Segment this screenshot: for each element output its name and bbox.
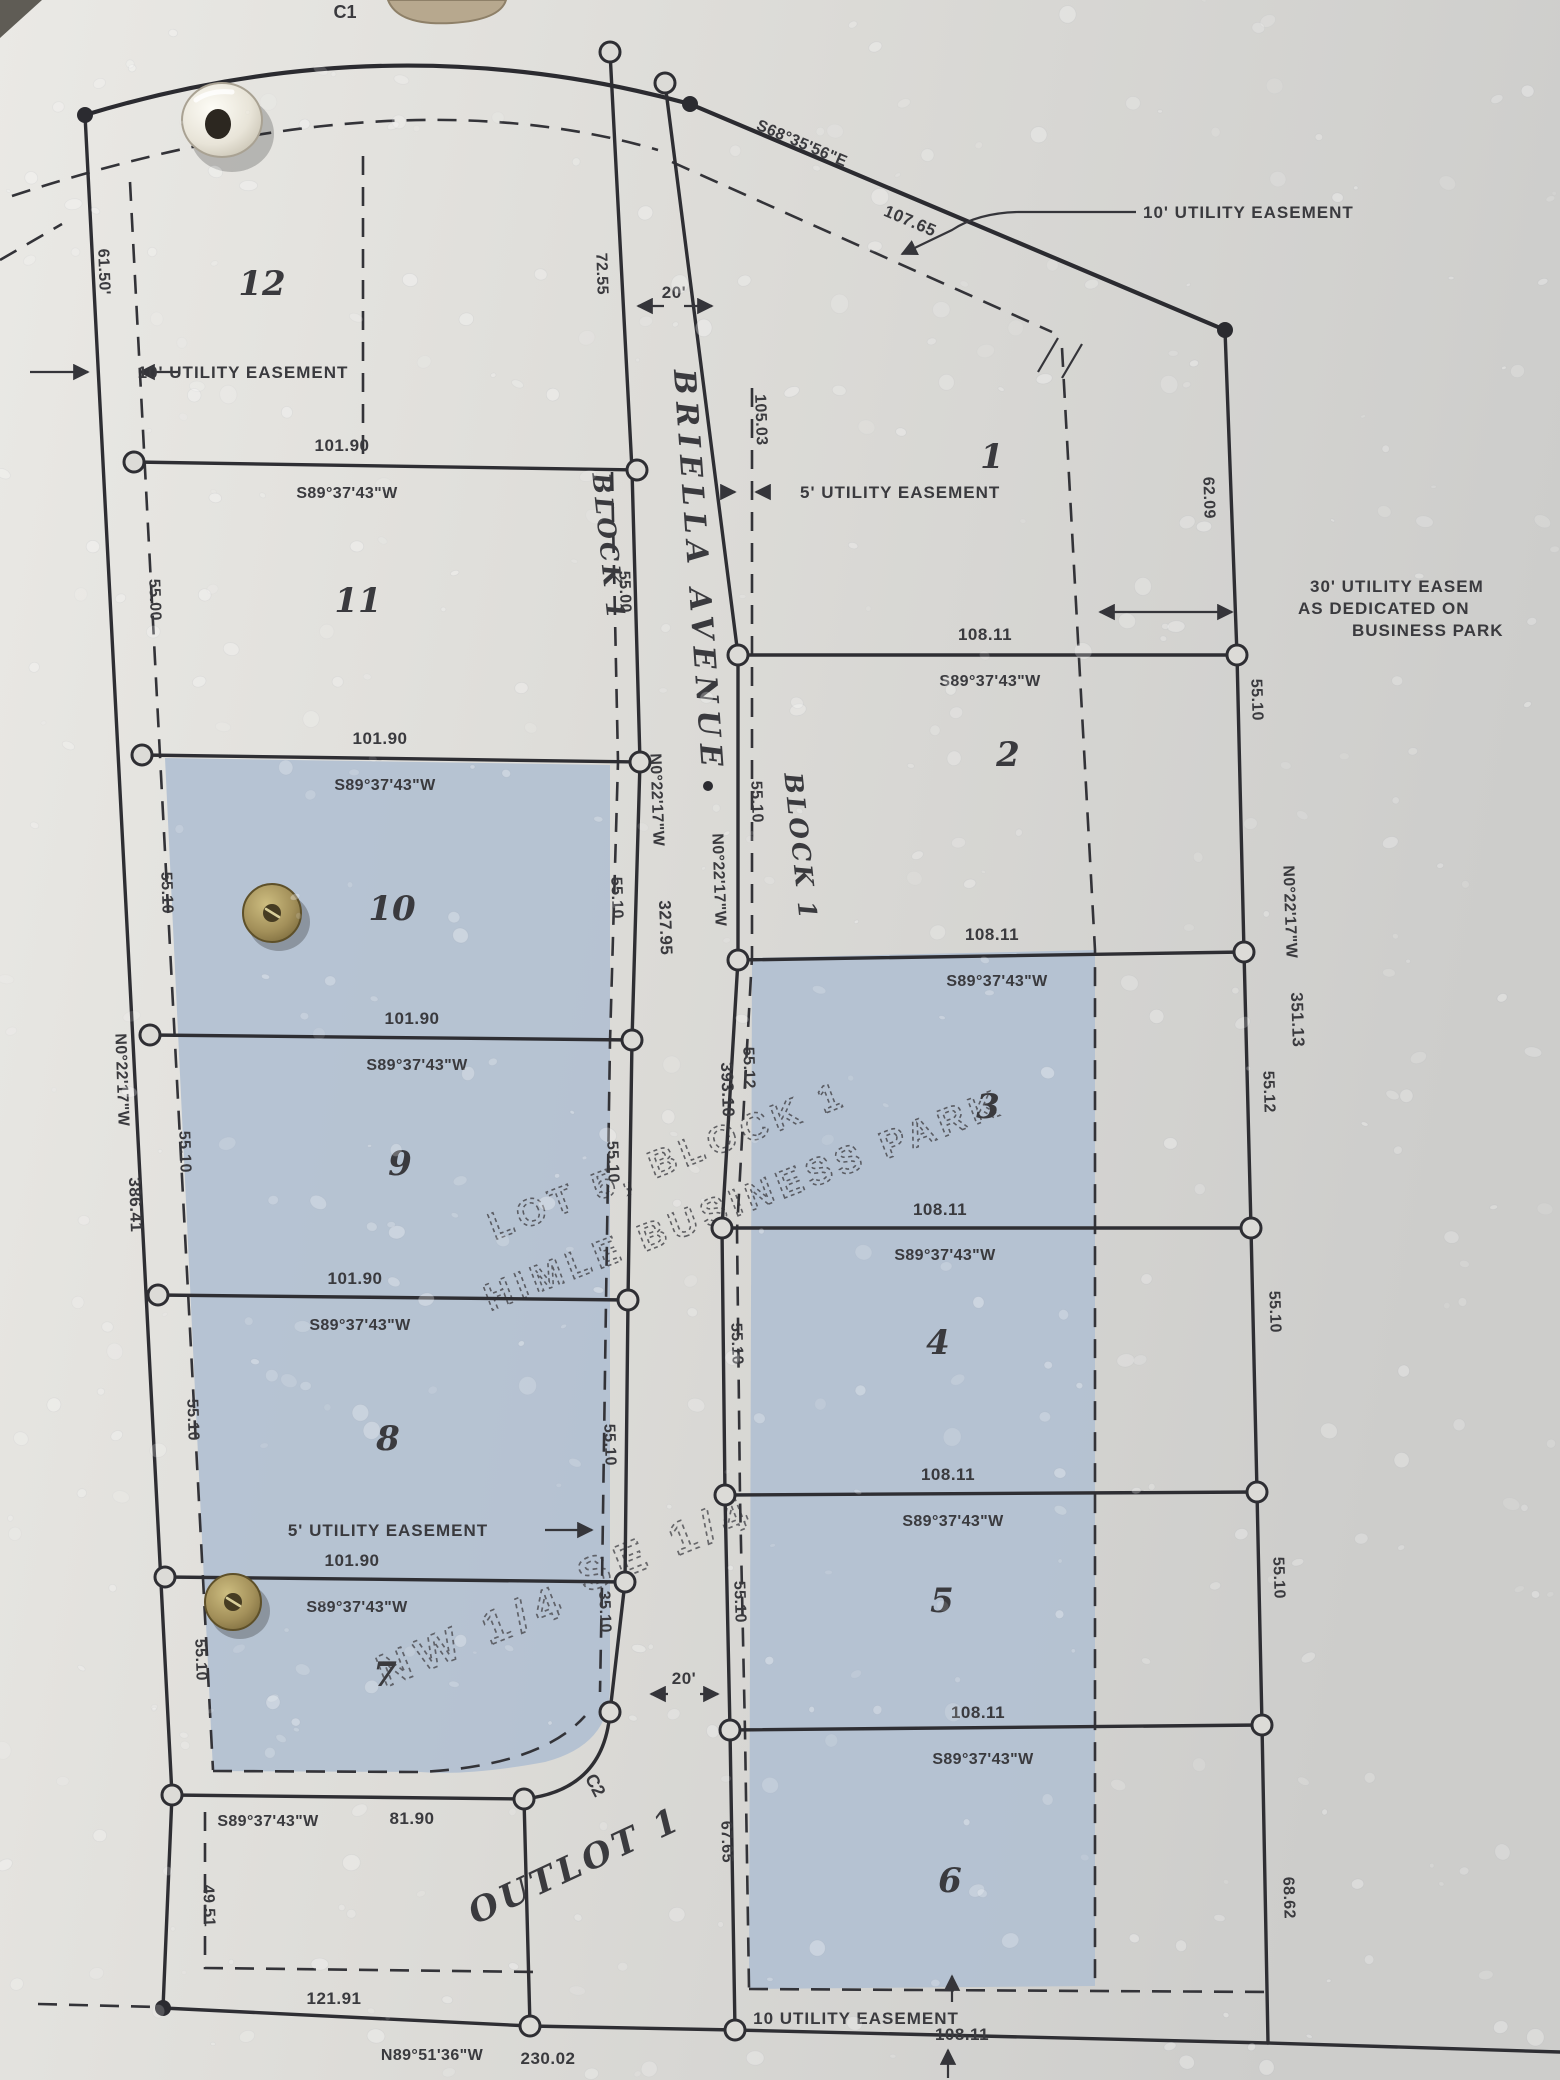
west-row-seg-55-10b: 55.10 bbox=[603, 1141, 621, 1184]
east-boundary-total: 351.13 bbox=[1287, 992, 1308, 1048]
west-edge-seg-55-10b: 55.10 bbox=[175, 1131, 193, 1174]
outlot-top-bearing: S89°37'43"W bbox=[217, 1813, 319, 1830]
east-line3-bearing: S89°37'43"W bbox=[894, 1247, 996, 1264]
west-line1-length: 101.90 bbox=[315, 436, 370, 455]
east-line3-length: 108.11 bbox=[913, 1200, 967, 1219]
lot-12: 12 bbox=[238, 264, 285, 304]
west-line4-bearing: S89°37'43"W bbox=[309, 1317, 411, 1334]
west-boundary-total: 386.41 bbox=[125, 1177, 146, 1233]
five-ft-easement-lower: 5' UTILITY EASEMENT bbox=[288, 1521, 488, 1540]
utility-easement-top-right: 10' UTILITY EASEMENT bbox=[1143, 203, 1354, 222]
east-row-seg-55-10a: 55.10 bbox=[747, 781, 765, 824]
east-edge-seg-55-10b: 55.10 bbox=[1265, 1291, 1283, 1334]
lot-1: 1 bbox=[980, 437, 1004, 477]
west-edge-seg-55-10d: 55.10 bbox=[191, 1639, 209, 1682]
east-row-seg-67-65: 67.65 bbox=[717, 1821, 735, 1864]
west-boundary-bearing: N0°22'17"W bbox=[111, 1033, 131, 1127]
east-line2-bearing: S89°37'43"W bbox=[946, 973, 1048, 990]
lot-4: 4 bbox=[926, 1323, 950, 1363]
utility-easement-top-left: 10' UTILITY EASEMENT bbox=[138, 363, 349, 382]
west-edge-seg-61-50: 61.50' bbox=[94, 248, 113, 295]
west-row-total: 327.95 bbox=[655, 900, 676, 956]
west-edge-seg-55-10c: 55.10 bbox=[183, 1399, 201, 1442]
lot-3: 3 bbox=[976, 1087, 1000, 1127]
outlot-top-length: 81.90 bbox=[389, 1809, 434, 1828]
lot-2: 2 bbox=[995, 735, 1020, 775]
east-line1-length: 108.11 bbox=[958, 625, 1012, 644]
west-row-seg-35-10: 35.10 bbox=[595, 1591, 613, 1634]
east-line4-length: 108.11 bbox=[921, 1465, 975, 1484]
east-edge-seg-62-09: 62.09 bbox=[1199, 477, 1217, 520]
east-row-bearing: N0°22'17"W bbox=[708, 833, 728, 927]
west-line2-length: 101.90 bbox=[353, 729, 408, 748]
road-width-bottom: 20' bbox=[672, 1669, 696, 1688]
west-line2-bearing: S89°37'43"W bbox=[334, 777, 436, 794]
thirty-easement-line3: BUSINESS PARK bbox=[1352, 621, 1504, 640]
west-edge-seg-49-51: 49.51 bbox=[199, 1885, 217, 1928]
east-line2-length: 108.11 bbox=[965, 925, 1019, 944]
west-row-seg-55-00: 55.00 bbox=[615, 571, 633, 614]
east-row-seg-55-10c: 55.10 bbox=[730, 1581, 748, 1624]
curve-c1-label: C1 bbox=[333, 2, 356, 22]
west-line5-length: 101.90 bbox=[325, 1551, 380, 1570]
east-boundary-bearing: N0°22'17"W bbox=[1279, 865, 1299, 959]
west-line4-length: 101.90 bbox=[328, 1269, 383, 1288]
west-line3-bearing: S89°37'43"W bbox=[366, 1057, 468, 1074]
bottom-total: 230.02 bbox=[521, 2049, 576, 2068]
east-edge-seg-68-62: 68.62 bbox=[1279, 1877, 1297, 1920]
lot-11: 11 bbox=[334, 581, 381, 621]
east-line5-bearing: S89°37'43"W bbox=[932, 1751, 1034, 1768]
bottom-left-length: 121.91 bbox=[307, 1989, 362, 2008]
bottom-right-length: 108.11 bbox=[935, 2025, 989, 2044]
west-row-seg-55-10c: 55.10 bbox=[600, 1424, 618, 1467]
thirty-easement-line2: AS DEDICATED ON bbox=[1298, 599, 1469, 618]
east-row-seg-55-12: 55.12 bbox=[739, 1047, 757, 1090]
five-ft-easement-upper: 5' UTILITY EASEMENT bbox=[800, 483, 1000, 502]
west-edge-seg-55-10a: 55.10 bbox=[157, 872, 175, 915]
east-row-seg-105-03: 105.03 bbox=[751, 394, 770, 446]
plat-map-photo: LOT 5, BLOCK 1 HIMLE BUSINESS PARK NW 1/… bbox=[0, 0, 1560, 2080]
west-line3-length: 101.90 bbox=[385, 1009, 440, 1028]
lot-6: 6 bbox=[938, 1861, 962, 1901]
west-edge-seg-55-00: 55.00 bbox=[145, 579, 163, 622]
east-edge-seg-55-12: 55.12 bbox=[1259, 1071, 1277, 1114]
lot-10: 10 bbox=[368, 889, 416, 929]
east-edge-seg-55-10a: 55.10 bbox=[1247, 679, 1265, 722]
bottom-bearing: N89°51'36"W bbox=[381, 2047, 484, 2064]
east-row-total: 393.10 bbox=[717, 1062, 738, 1118]
west-row-seg-72-55: 72.55 bbox=[592, 253, 610, 296]
thirty-easement-line1: 30' UTILITY EASEM bbox=[1310, 577, 1484, 596]
west-row-seg-55-10a: 55.10 bbox=[607, 877, 625, 920]
west-row-bearing: N0°22'17"W bbox=[646, 753, 666, 847]
east-line4-bearing: S89°37'43"W bbox=[902, 1513, 1004, 1530]
